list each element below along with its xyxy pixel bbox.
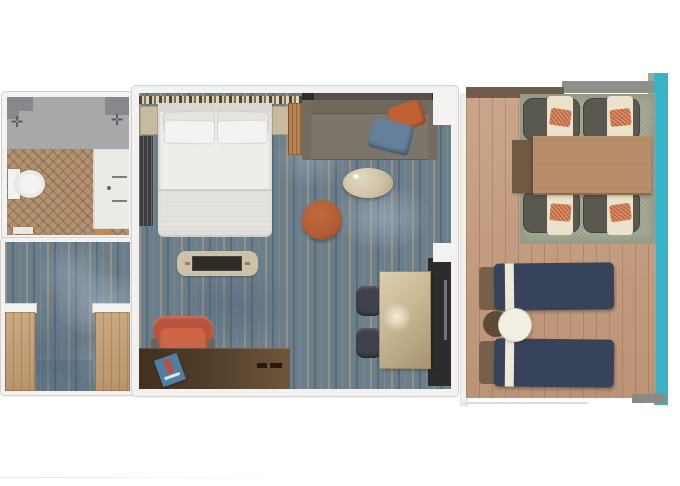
- window-table: [380, 272, 430, 368]
- chair-pillow: [609, 108, 632, 127]
- bathroom: ✛ ✛: [2, 92, 134, 240]
- sun-lounger: [494, 262, 614, 310]
- tv-console: [177, 251, 258, 276]
- wall-stub-left: [5, 304, 36, 312]
- blanket-fold: [158, 189, 272, 237]
- towel-bar: [112, 200, 127, 202]
- tv: [193, 257, 241, 270]
- dining-chair: [523, 98, 580, 141]
- window-chair-upper: [356, 286, 382, 316]
- towel-bar: [112, 176, 127, 178]
- dining-chair: [583, 190, 640, 233]
- balcony-top-bar-grey: [562, 81, 654, 93]
- sofa: [302, 100, 437, 160]
- magazine-graphic: [164, 372, 180, 380]
- dining-chair: [523, 190, 580, 233]
- faint-baseline: [2, 477, 322, 478]
- chair-pillow: [609, 203, 632, 223]
- balcony-under-line: [463, 402, 588, 404]
- window-reflection: [444, 280, 447, 340]
- entry-corridor: [1, 238, 134, 395]
- bathroom-interior: ✛ ✛: [7, 97, 129, 235]
- ottoman: [302, 200, 342, 240]
- picture-window: [428, 258, 451, 386]
- table-sheen: [384, 300, 410, 334]
- shower-fixture-icon: ✛: [109, 111, 125, 131]
- vanity: [93, 149, 129, 229]
- sofa-arm: [302, 100, 311, 160]
- table-highlight: [353, 174, 359, 179]
- corridor-runner-shade: [37, 360, 93, 391]
- sun-lounger: [494, 338, 614, 387]
- wood-wardrobe: [288, 103, 302, 155]
- lounger-towel-stripe: [505, 338, 515, 386]
- wall-notch: [433, 243, 456, 262]
- pillow: [217, 120, 268, 145]
- sea-edge: [654, 73, 668, 405]
- lounger-towel-stripe: [505, 263, 514, 310]
- shower-corner-left: [7, 97, 33, 111]
- nightstand-left: [140, 106, 158, 135]
- vanity-knob: [107, 186, 111, 190]
- magazine: [154, 353, 186, 388]
- wall-segment-top-right: [433, 88, 456, 125]
- closet-left: [5, 312, 35, 391]
- toilet: [15, 170, 45, 198]
- bedroom: [132, 86, 458, 396]
- magazine-graphic: [163, 359, 173, 374]
- dining-table-bench: [512, 140, 535, 193]
- open-wardrobe: [139, 136, 153, 226]
- balcony: [458, 70, 680, 410]
- dining-chair: [583, 98, 640, 141]
- closet-right: [95, 312, 130, 391]
- bedroom-interior: [139, 93, 451, 389]
- chair-pillow: [549, 203, 571, 222]
- desk-item: [270, 363, 282, 368]
- side-table: [499, 309, 531, 341]
- door-threshold: [95, 229, 109, 235]
- bath-mat: [13, 227, 33, 234]
- floor-plan: ✛ ✛: [0, 0, 680, 486]
- desk-item: [257, 363, 267, 368]
- desk: [139, 348, 290, 389]
- console-knob: [245, 262, 250, 265]
- wall-stub-right: [93, 304, 130, 312]
- dining-table: [533, 136, 651, 193]
- oval-coffee-table: [343, 168, 393, 198]
- console-knob: [185, 262, 190, 265]
- pillow: [164, 120, 215, 145]
- chair-pillow: [549, 108, 572, 128]
- balcony-bottom-bar: [632, 394, 666, 403]
- king-bed: [158, 103, 272, 235]
- window-chair-lower: [356, 328, 382, 358]
- shower-fixture-icon: ✛: [9, 113, 25, 133]
- corridor-interior: [5, 242, 130, 391]
